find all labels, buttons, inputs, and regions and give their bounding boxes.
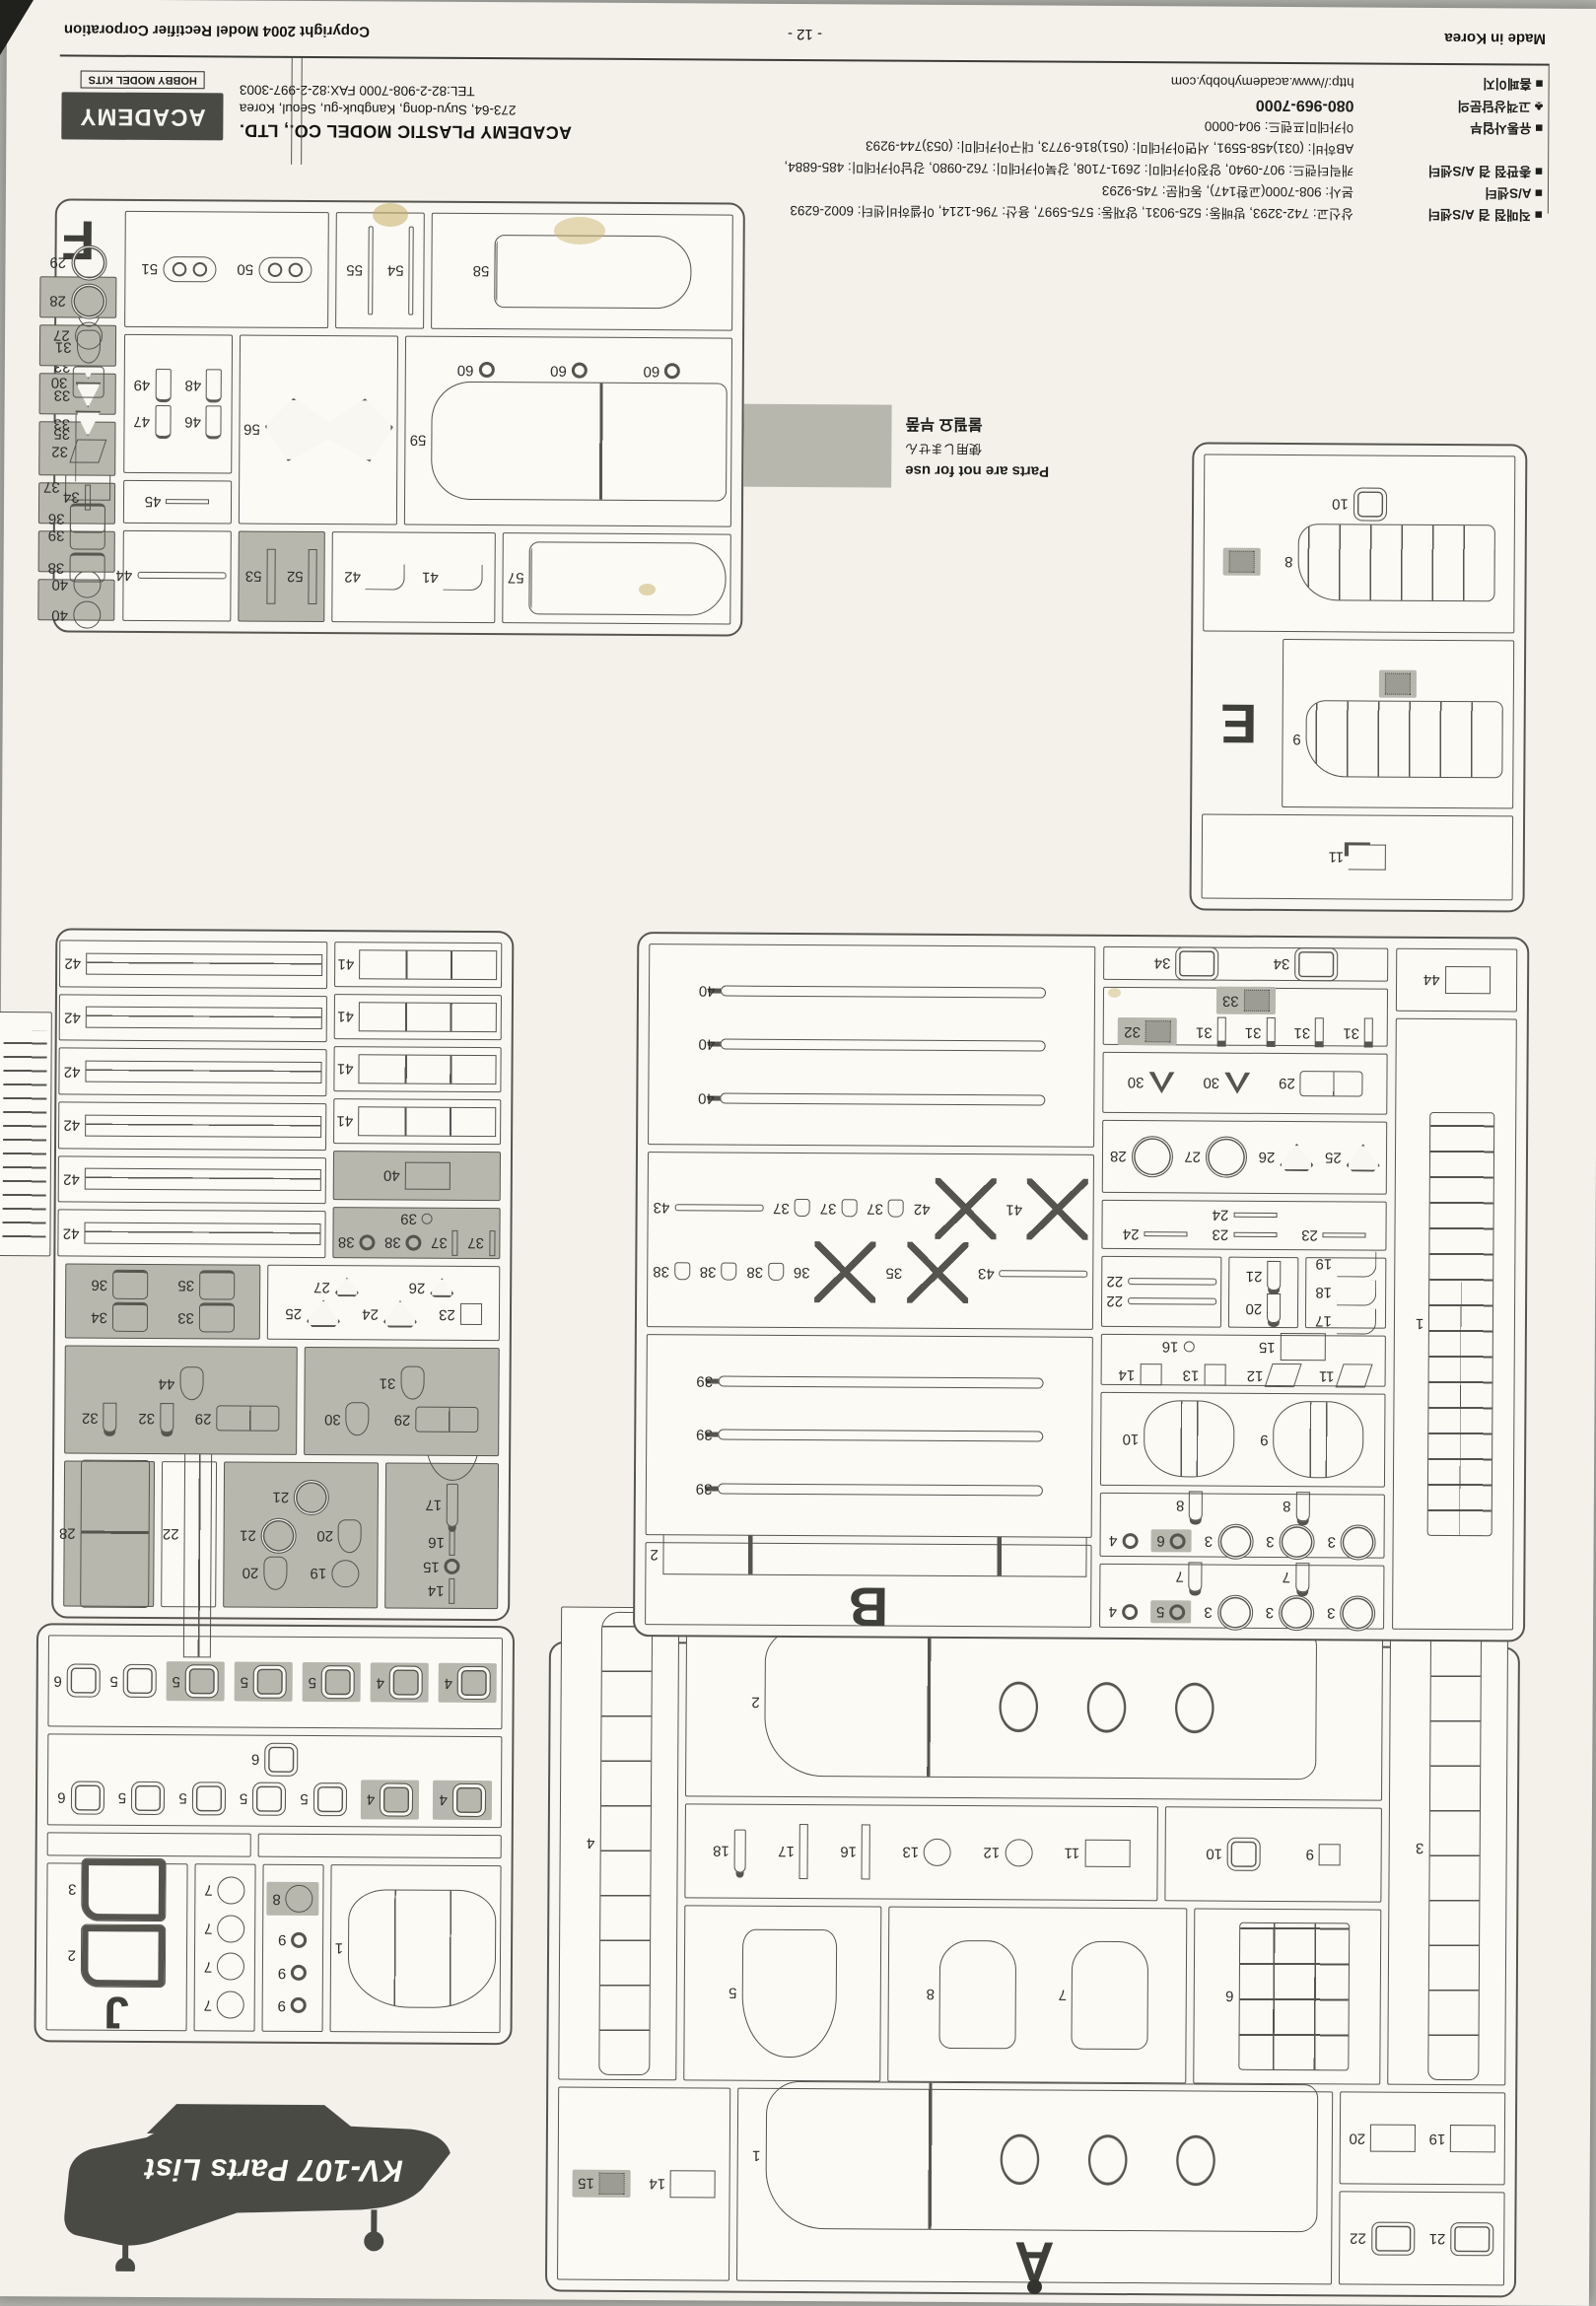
- part: 21: [1429, 2222, 1494, 2256]
- part: 37: [431, 1230, 458, 1256]
- part-box: 1920: [1340, 2091, 1506, 2186]
- banner-title: KV-107 Parts List: [111, 2151, 437, 2189]
- win-glyph: [71, 1782, 104, 1815]
- part-number: 46: [184, 414, 201, 431]
- part-box: 2222: [1101, 1256, 1221, 1328]
- part-number: 58: [473, 262, 490, 279]
- part-number: 23: [1301, 1227, 1318, 1244]
- part: 1: [1415, 1112, 1495, 1536]
- part-number: 39: [696, 1480, 713, 1497]
- part-number: 37: [467, 1234, 484, 1251]
- win2-glyph: [1371, 2221, 1415, 2255]
- part-number: 41: [1006, 1201, 1022, 1218]
- part: 18: [713, 1829, 746, 1872]
- part: 27: [53, 321, 103, 349]
- part-box: 5051: [124, 211, 329, 328]
- part: 1: [752, 2081, 1318, 2232]
- part: 3: [1266, 1524, 1315, 1560]
- rail2-glyph: [358, 1054, 496, 1084]
- part-number: 42: [64, 1009, 81, 1025]
- part-number: 17: [1315, 1313, 1332, 1330]
- fan-glyph: [383, 1300, 417, 1328]
- part: 40: [51, 601, 101, 629]
- copyright-line: Copyright 2004 Model Rectifier Corporati…: [64, 21, 370, 39]
- ring-glyph: [664, 364, 680, 380]
- strip-glyph: [266, 549, 275, 604]
- part: 43: [978, 1265, 1088, 1283]
- ring-glyph: [1169, 1604, 1185, 1620]
- part-number: 28: [59, 1525, 76, 1542]
- seat-glyph: [199, 1271, 235, 1300]
- seat-glyph: [69, 553, 104, 583]
- part: 21: [240, 1518, 297, 1554]
- part: 10: [1332, 487, 1387, 521]
- sprue-letter-a: A: [1014, 2234, 1055, 2289]
- part: 3: [1205, 1523, 1254, 1559]
- fanS-glyph: [430, 1278, 453, 1297]
- part-box: 910: [1100, 1391, 1386, 1487]
- Lpart-glyph: [1349, 844, 1386, 870]
- part-box: 40: [333, 1151, 501, 1201]
- part-box: 171819: [1305, 1257, 1387, 1329]
- part: 30: [1203, 1072, 1250, 1093]
- part: 6: [251, 1743, 299, 1777]
- part: 50: [237, 257, 312, 283]
- part-number: 42: [64, 955, 81, 972]
- part: 36: [794, 1241, 876, 1303]
- part-number: 44: [115, 567, 132, 584]
- part-number: 4: [439, 1791, 447, 1808]
- part: 5: [118, 1782, 166, 1815]
- part: 31: [1293, 1017, 1324, 1047]
- pin-glyph: [85, 485, 91, 511]
- part: 5: [729, 1929, 837, 2059]
- part-number: 14: [1118, 1366, 1135, 1383]
- win2-glyph: [1294, 947, 1338, 981]
- caps-glyph: [258, 257, 312, 283]
- fig-glyph: [1267, 1293, 1281, 1323]
- part: 60: [550, 362, 588, 379]
- part-box: 78: [887, 1907, 1187, 2084]
- part-number: 38: [746, 1264, 763, 1281]
- part: 38: [653, 1263, 690, 1281]
- part-number: 41: [337, 956, 354, 973]
- part-number: 1: [335, 1940, 343, 1957]
- part: 59: [409, 382, 727, 502]
- part-number: 14: [428, 1582, 445, 1599]
- part-number: 25: [285, 1305, 302, 1322]
- part-box: 3839: [38, 530, 115, 573]
- part-number: 5: [109, 1673, 117, 1690]
- part-number: 21: [1246, 1268, 1263, 1285]
- part: 23: [439, 1303, 482, 1325]
- part: 55: [346, 226, 373, 314]
- ring-glyph: [291, 1965, 307, 1981]
- part-number: 49: [134, 377, 151, 393]
- part-box: 57: [503, 532, 731, 624]
- part: 3: [1327, 1524, 1376, 1560]
- part-box: 3336488: [1100, 1493, 1385, 1559]
- sprue-letter-j: J: [104, 1991, 129, 2036]
- wheel-glyph: [1279, 1595, 1314, 1631]
- part: 4: [433, 1781, 492, 1820]
- win-glyph: [389, 1666, 423, 1700]
- part-number: 3: [1205, 1533, 1213, 1550]
- fan-glyph: [1347, 1144, 1380, 1171]
- fig-glyph: [1295, 1563, 1309, 1592]
- part-number: 4: [367, 1791, 375, 1808]
- part-number: 5: [173, 1673, 180, 1690]
- hub-glyph: [814, 1242, 875, 1303]
- part-number: 27: [313, 1279, 330, 1295]
- part: 8: [1284, 524, 1495, 601]
- part: 3: [68, 1857, 167, 1922]
- chip-glyph: [1385, 673, 1411, 695]
- part: 16: [428, 1530, 455, 1556]
- flag-glyph: [1336, 1364, 1373, 1388]
- part-box: 42: [59, 994, 327, 1042]
- part: 14: [428, 1578, 455, 1604]
- sprue-panel-h: 1415161718 1920202121 22 28 293031 29323…: [51, 928, 514, 1621]
- part-number: 38: [47, 559, 64, 576]
- contact-info: AB하비: (031)458-5591, 서면아카데미: (051)816-97…: [866, 137, 1353, 160]
- part-number: 24: [1123, 1225, 1140, 1242]
- wheel-glyph: [1217, 1595, 1253, 1631]
- part: 12: [1247, 1363, 1298, 1387]
- part: 8: [926, 1940, 1016, 2050]
- part: 33: [177, 1303, 235, 1333]
- circle-glyph: [217, 1915, 244, 1942]
- part-number: 8: [272, 1891, 280, 1908]
- part-number: 39: [696, 1373, 713, 1390]
- part: 38: [47, 553, 104, 583]
- rect-glyph: [1450, 2125, 1495, 2152]
- part: 34: [63, 484, 91, 510]
- hookS-glyph: [444, 565, 483, 591]
- part-number: 16: [840, 1844, 857, 1860]
- part-number: 26: [409, 1280, 426, 1296]
- pinT-glyph: [1266, 1017, 1275, 1047]
- hookS-glyph: [1337, 1308, 1376, 1334]
- part-number: 20: [1349, 2130, 1365, 2146]
- part-number: 13: [902, 1844, 919, 1860]
- rect-glyph: [405, 1162, 451, 1190]
- dot-glyph: [1183, 1341, 1194, 1352]
- part-number: 48: [184, 378, 201, 394]
- chip-glyph: [1229, 550, 1255, 572]
- part: 42: [344, 564, 405, 590]
- ring-glyph: [291, 1997, 307, 2013]
- part: 5: [109, 1664, 157, 1698]
- rodA-glyph: [137, 572, 226, 580]
- pinT-glyph: [1217, 1017, 1226, 1047]
- part: 5: [240, 1782, 287, 1816]
- part-box: B 2: [645, 1542, 1092, 1628]
- part: 17: [778, 1824, 808, 1879]
- seat-glyph: [112, 1270, 148, 1299]
- part-number: 11: [1065, 1845, 1080, 1861]
- part: 9: [278, 1964, 307, 1981]
- divider-line: [1548, 66, 1550, 214]
- part-number: 7: [204, 1882, 212, 1899]
- part: 37: [867, 1200, 904, 1218]
- circle-glyph: [331, 1560, 359, 1587]
- part: 28: [49, 283, 106, 318]
- part: 23: [1212, 1226, 1277, 1243]
- part-box: 1: [1392, 1018, 1516, 1631]
- part-number: 19: [1429, 2131, 1446, 2147]
- part: 9: [278, 1997, 307, 2014]
- part-number: 32: [138, 1410, 155, 1427]
- part-box: 3: [1387, 1612, 1508, 2086]
- part: 25: [285, 1299, 340, 1327]
- part: 32: [1118, 1017, 1177, 1045]
- part-box: 7777: [193, 1863, 255, 2031]
- part: 14: [1118, 1363, 1161, 1385]
- rail2-glyph: [358, 1106, 496, 1137]
- kv107-parts-list-banner: KV-107 Parts List: [47, 2077, 472, 2273]
- ring-glyph: [445, 1559, 460, 1574]
- part: 1: [334, 1889, 496, 2008]
- part-box: 313131313233: [1103, 987, 1388, 1047]
- fig-glyph: [160, 1404, 173, 1433]
- dot-glyph: [422, 1214, 433, 1224]
- part-number: 13: [1183, 1366, 1200, 1383]
- part: 29: [394, 1407, 479, 1433]
- part-number: 59: [410, 432, 427, 449]
- part-number: 9: [1292, 731, 1300, 747]
- rect-glyph: [1445, 966, 1491, 994]
- part: 22: [1350, 2221, 1415, 2255]
- chip-glyph: [1145, 1020, 1171, 1042]
- ring-glyph: [1122, 1604, 1138, 1620]
- part-number: 37: [431, 1234, 448, 1251]
- part-number: 43: [654, 1199, 670, 1216]
- part-number: 10: [1123, 1431, 1140, 1447]
- circle-glyph: [75, 321, 103, 349]
- part: 26: [1259, 1144, 1314, 1171]
- part-number: 30: [1128, 1074, 1145, 1090]
- seat-glyph: [199, 1303, 235, 1333]
- part-number: 2: [68, 1947, 76, 1964]
- part: 38: [746, 1263, 784, 1281]
- part-number: 29: [1279, 1075, 1295, 1091]
- chip-glyph: [1244, 990, 1270, 1012]
- part-box: 111213141516: [1101, 1334, 1386, 1386]
- contact-label: [1367, 145, 1543, 146]
- part-number: 38: [700, 1263, 717, 1280]
- part: 39: [400, 1211, 433, 1227]
- part: 29: [1279, 1071, 1363, 1097]
- part-number: 37: [820, 1200, 837, 1217]
- part: 27: [1184, 1136, 1247, 1177]
- part: 39: [696, 1480, 1043, 1499]
- part-box: 44: [122, 530, 232, 622]
- part: 2: [650, 1534, 1087, 1578]
- part: 3: [1415, 1617, 1482, 2080]
- part: 15: [423, 1559, 460, 1575]
- part: 13: [1183, 1364, 1226, 1386]
- rect-glyph: [1084, 1840, 1130, 1867]
- part-number: 6: [251, 1751, 259, 1768]
- part-number: 5: [240, 1790, 247, 1807]
- rail-glyph: [86, 952, 322, 975]
- part-box: 42: [59, 1048, 327, 1096]
- part: 44: [1423, 966, 1491, 994]
- unused-parts-legend: Parts are not for use 使用しません 불필요 부품: [743, 404, 1089, 489]
- part-number: 20: [243, 1565, 259, 1581]
- part: 19: [1429, 2125, 1496, 2152]
- part: 22: [1106, 1293, 1216, 1310]
- part-number: 29: [195, 1410, 212, 1427]
- part-box: 1920202121: [223, 1461, 379, 1608]
- company-name: ACADEMY PLASTIC MODEL CO., LTD.: [240, 120, 572, 143]
- hub-glyph: [907, 1242, 968, 1303]
- hookS-glyph: [1337, 1280, 1376, 1305]
- chip-glyph: [599, 2173, 625, 2195]
- part-number: 12: [1247, 1367, 1264, 1384]
- part: 7: [204, 1992, 245, 2019]
- part: 23: [1301, 1227, 1366, 1244]
- part-box: 11: [1202, 813, 1514, 900]
- part: 42: [63, 1114, 321, 1138]
- part: 53: [245, 549, 276, 604]
- part-number: 53: [245, 568, 262, 585]
- rail-glyph: [84, 1223, 320, 1245]
- part: 3: [1266, 1595, 1315, 1631]
- sq-glyph: [1204, 1364, 1225, 1386]
- part-box: 5: [683, 1905, 881, 2081]
- part: 31: [1343, 1018, 1373, 1048]
- part-number: 18: [1315, 1285, 1332, 1301]
- part-number: 20: [1245, 1300, 1262, 1317]
- blade-glyph: [718, 1376, 1043, 1389]
- flag-glyph: [69, 440, 106, 463]
- part-box: 111213161718: [684, 1803, 1158, 1901]
- part-box: 4455556: [47, 1635, 503, 1729]
- rect-glyph: [1281, 1333, 1326, 1361]
- canopy-glyph: [348, 1889, 497, 2008]
- cover-glyph: [939, 1940, 1017, 2049]
- rect-glyph: [1370, 2125, 1416, 2152]
- part: 36: [91, 1270, 148, 1299]
- win-glyph: [131, 1782, 165, 1815]
- part-number: 26: [1259, 1149, 1276, 1165]
- part: 20: [242, 1557, 287, 1590]
- cone-glyph: [346, 1403, 370, 1436]
- part-box: 44: [1396, 948, 1517, 1013]
- part: 5: [300, 1782, 347, 1816]
- part: 24: [362, 1300, 417, 1328]
- wheelB-glyph: [1132, 1136, 1173, 1177]
- part: 9: [1306, 1844, 1341, 1865]
- part-number: 10: [1332, 496, 1349, 513]
- wheel-glyph: [71, 245, 106, 280]
- win-glyph: [1227, 1838, 1261, 1871]
- part-number: 5: [178, 1790, 186, 1807]
- part: 41: [337, 1002, 497, 1032]
- part-number: 50: [237, 261, 253, 278]
- part-number: 22: [1106, 1293, 1123, 1309]
- part-number: 32: [1124, 1023, 1141, 1040]
- clip-glyph: [155, 369, 171, 402]
- bench-glyph: [216, 1406, 279, 1432]
- part: 42: [64, 1061, 322, 1084]
- part-number: 42: [63, 1224, 80, 1241]
- part-number: 36: [48, 510, 65, 526]
- part-box: 433536383838414237373743: [647, 1152, 1094, 1330]
- legend-text-en: Parts are not for use: [905, 462, 1088, 480]
- fan-glyph: [1280, 1144, 1313, 1171]
- blade-glyph: [717, 1483, 1042, 1496]
- part-number: 38: [338, 1234, 355, 1251]
- part: 60: [643, 363, 680, 380]
- contact-info: 상신교: 742-3293, 방배동: 525-9031, 양재동: 575-5…: [790, 202, 1353, 225]
- part-number: 15: [1259, 1339, 1276, 1356]
- clip-glyph: [155, 405, 171, 439]
- part-number: 42: [63, 1117, 80, 1134]
- part-number: 42: [914, 1201, 931, 1218]
- slats-glyph: [3, 1030, 47, 1237]
- part: 60: [457, 362, 495, 379]
- part: 7: [204, 1876, 245, 1904]
- ring-glyph: [360, 1234, 376, 1250]
- part-number: 34: [63, 489, 80, 506]
- part-box: 41: [334, 942, 502, 988]
- part-number: 3: [1328, 1534, 1336, 1551]
- part: 31: [1245, 1017, 1276, 1047]
- part: 20: [1349, 2125, 1416, 2152]
- part-number: 60: [550, 362, 567, 379]
- part-box: 2122: [1339, 2192, 1505, 2286]
- part-box: 41: [333, 1098, 501, 1145]
- win2-glyph: [1450, 2222, 1493, 2256]
- sprue-letter-e: E: [1220, 695, 1258, 750]
- part: 21: [1246, 1261, 1282, 1291]
- sprue-letter-b: B: [848, 1579, 888, 1635]
- contact-label: ■ 총판점 겸 A/S센터: [1367, 163, 1543, 183]
- part: 40: [383, 1161, 451, 1189]
- customer-service-number: 080-969-7000: [1256, 96, 1354, 114]
- part-number: 3: [68, 1881, 76, 1898]
- part: 45: [145, 493, 210, 510]
- part-number: 28: [1110, 1148, 1127, 1164]
- door-glyph: [1238, 1922, 1350, 2071]
- part: 6: [1225, 1922, 1350, 2071]
- wheelB-glyph: [1206, 1136, 1247, 1177]
- part: 44: [115, 567, 226, 585]
- part: 30: [51, 366, 104, 397]
- part-box: 5455: [335, 212, 425, 329]
- part-box: 3737383839: [332, 1207, 500, 1259]
- part: 35: [885, 1242, 968, 1304]
- part-box: 42: [58, 1101, 326, 1150]
- part-box: 59606060: [404, 336, 732, 527]
- rect-glyph: [670, 2170, 716, 2198]
- part-box: 41: [334, 994, 502, 1040]
- part: 26: [409, 1278, 454, 1297]
- part-box: 42: [58, 1155, 326, 1204]
- scanned-parts-list-page: KV-107 Parts List 2122 1920 A 1 1415 3 6…: [0, 0, 1596, 2306]
- part-number: 6: [57, 1789, 65, 1806]
- hub-glyph: [1027, 1179, 1088, 1240]
- part-box: 2021: [1228, 1257, 1298, 1328]
- part: 9: [1260, 1401, 1364, 1479]
- part-box: 404040: [648, 943, 1096, 1148]
- part-number: 7: [1059, 1987, 1067, 2003]
- part-number: 11: [1319, 1367, 1335, 1384]
- part: 54: [387, 226, 414, 314]
